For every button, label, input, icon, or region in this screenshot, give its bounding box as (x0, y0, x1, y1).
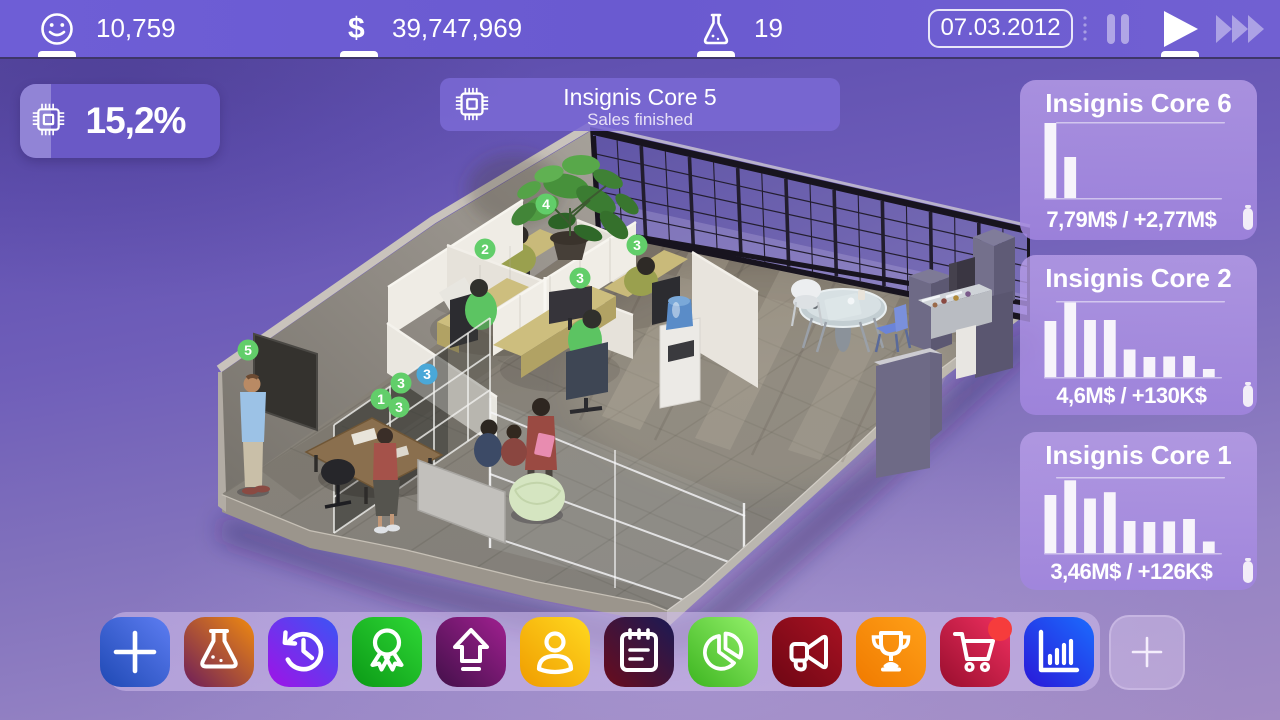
svg-text:3: 3 (395, 399, 403, 415)
svg-text:1: 1 (377, 391, 385, 407)
svg-text:3: 3 (576, 270, 584, 286)
svg-text:2: 2 (481, 241, 489, 257)
svg-text:5: 5 (244, 342, 252, 358)
svg-text:3: 3 (397, 375, 405, 391)
svg-text:4: 4 (542, 196, 550, 212)
svg-text:3: 3 (423, 366, 431, 382)
svg-text:3: 3 (633, 237, 641, 253)
